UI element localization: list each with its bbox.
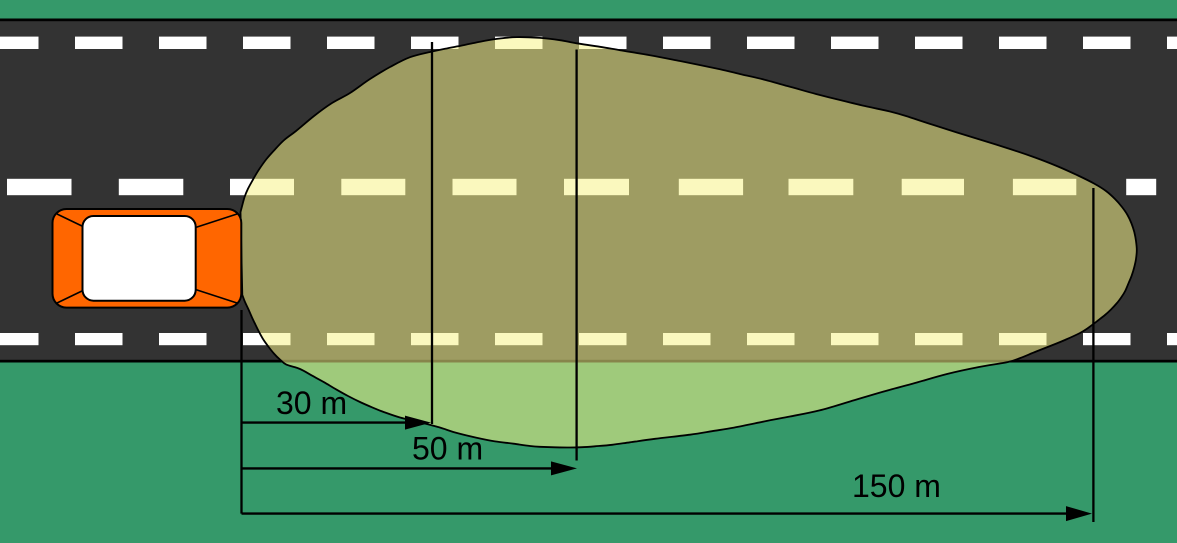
svg-text:150 m: 150 m [852,468,941,504]
svg-text:30 m: 30 m [276,385,347,421]
svg-text:50 m: 50 m [412,431,483,467]
